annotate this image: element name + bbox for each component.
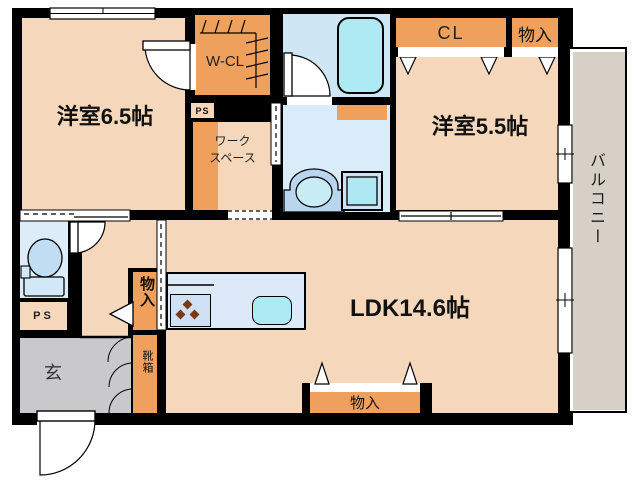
label-balcony: バルコニー [583, 152, 607, 247]
label-bedroom2: 洋室5.5帖 [415, 111, 545, 139]
door-arc-toilet [74, 222, 105, 253]
label-workspace-line2: スペース [193, 150, 272, 167]
stove-burners-icon [176, 300, 200, 320]
door-leaf-entrance [37, 411, 95, 421]
label-pipe-space-lower: PS [20, 306, 67, 326]
label-storage-ldk: 物入 [310, 393, 420, 412]
closet-door-triangle-2 [481, 57, 497, 74]
storage-top-door-triangle [539, 57, 555, 74]
sliding-door-washroom [271, 103, 281, 165]
label-pipe-space-upper: PS [189, 101, 216, 120]
window-bedroom2-balcony [556, 125, 574, 183]
door-leaf-bathroom [284, 53, 292, 96]
storage-top-door-track [512, 47, 558, 57]
label-walk-in-closet: W-CL [195, 52, 255, 70]
toilet-icon [21, 239, 64, 296]
label-entrance: 玄 [38, 358, 68, 386]
door-leaf-toilet [70, 222, 78, 253]
washing-machine-icon [342, 172, 382, 210]
doorway-gap-bathroom [287, 96, 332, 105]
storage-hall-door-triangle [110, 302, 133, 326]
window-bedroom1-top [50, 8, 155, 19]
door-leaf-wcl [143, 41, 190, 50]
closet-door-track [398, 47, 504, 57]
sliding-door-bedroom2 [399, 211, 503, 221]
label-bedroom1: 洋室6.5帖 [40, 101, 170, 129]
sliding-door-bedroom1 [20, 210, 130, 221]
label-shoe-box: 靴箱 [139, 350, 155, 374]
door-arc-bathroom [288, 55, 330, 96]
label-ldk: LDK14.6帖 [330, 290, 490, 320]
window-ldk-balcony [556, 248, 574, 353]
label-workspace: ワーク スペース [193, 133, 272, 167]
label-storage-top: 物入 [510, 20, 560, 46]
floor-plan: 洋室6.5帖 洋室5.5帖 LDK14.6帖 W-CL CL 物入 物入 物入 … [0, 0, 638, 480]
washbasin-icon [284, 169, 344, 212]
label-closet: CL [396, 20, 506, 46]
storage-ldk-door-triangle-1 [315, 363, 329, 384]
opening-workspace-ldk [228, 210, 272, 220]
label-workspace-line1: ワーク [193, 133, 272, 150]
closet-door-triangle-1 [400, 57, 416, 74]
door-arc-wcl [145, 45, 190, 90]
storage-ldk-door-triangle-2 [403, 363, 417, 384]
label-storage-hall: 物入 [136, 276, 157, 308]
shoe-box-door-arcs [108, 337, 133, 413]
sliding-door-hall-ldk [157, 220, 166, 330]
door-arc-entrance [40, 420, 95, 475]
